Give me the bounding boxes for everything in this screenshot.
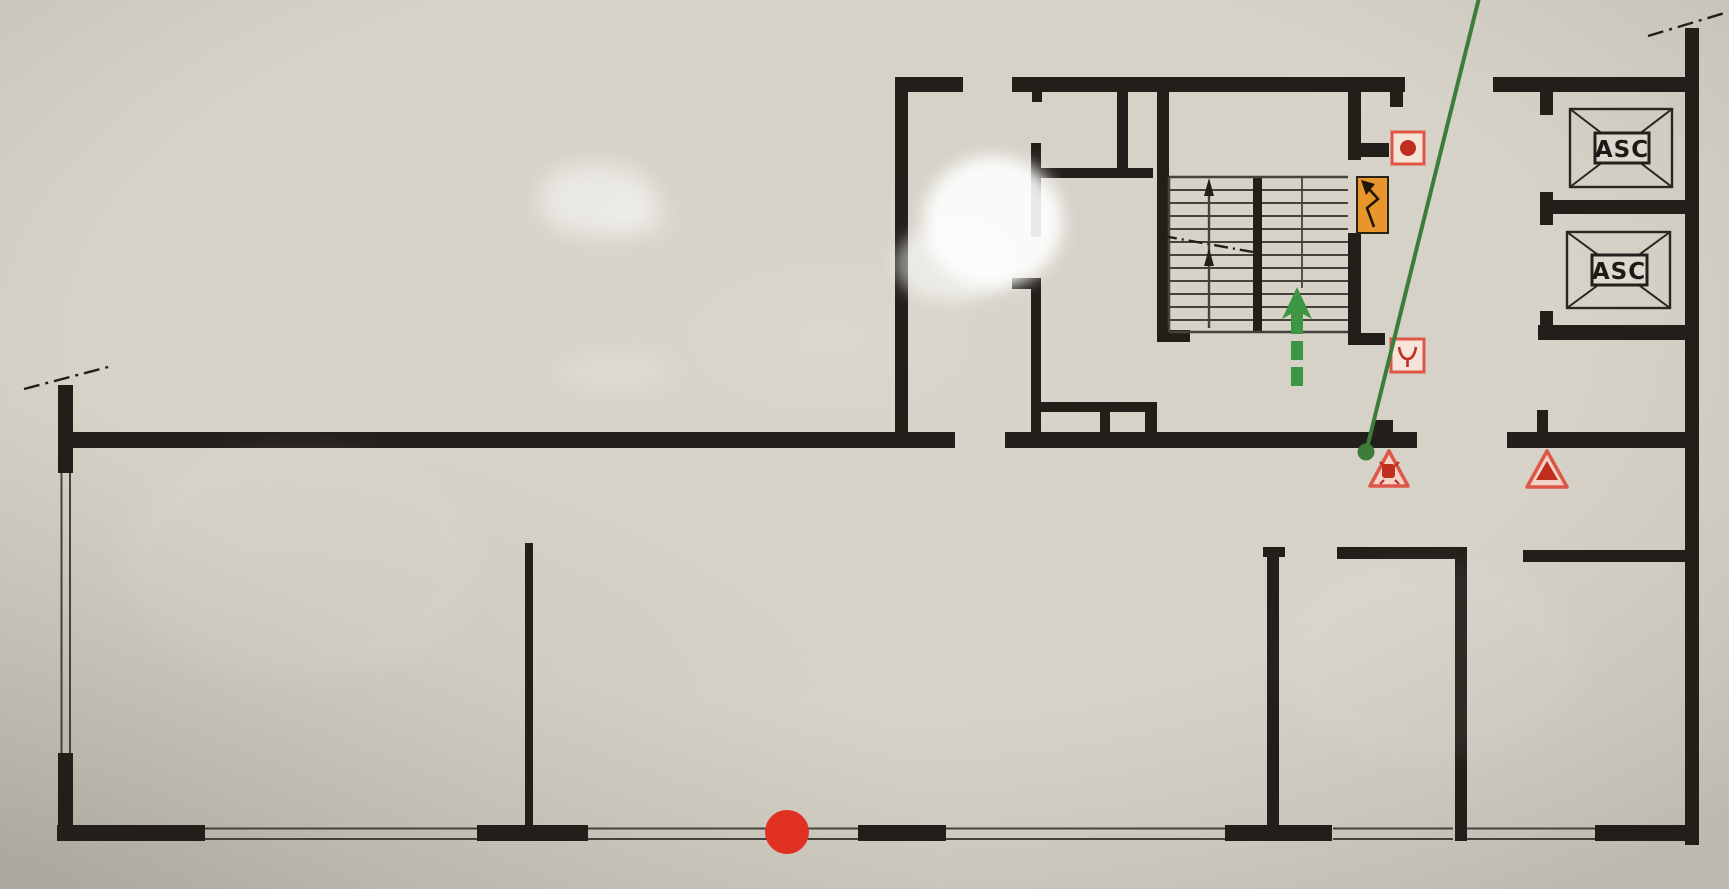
elevator-2-label: ASC [1592,259,1646,285]
elevator-1-label: ASC [1595,137,1649,163]
floor-plan-photo: ASC ASC [0,0,1729,889]
electrical-panel-icon [1357,177,1388,233]
location-marker-icon [765,810,809,854]
fire-valve-icon [1391,339,1424,372]
route-start-dot [1358,444,1375,461]
fire-alarm-call-point-icon [1392,132,1424,164]
